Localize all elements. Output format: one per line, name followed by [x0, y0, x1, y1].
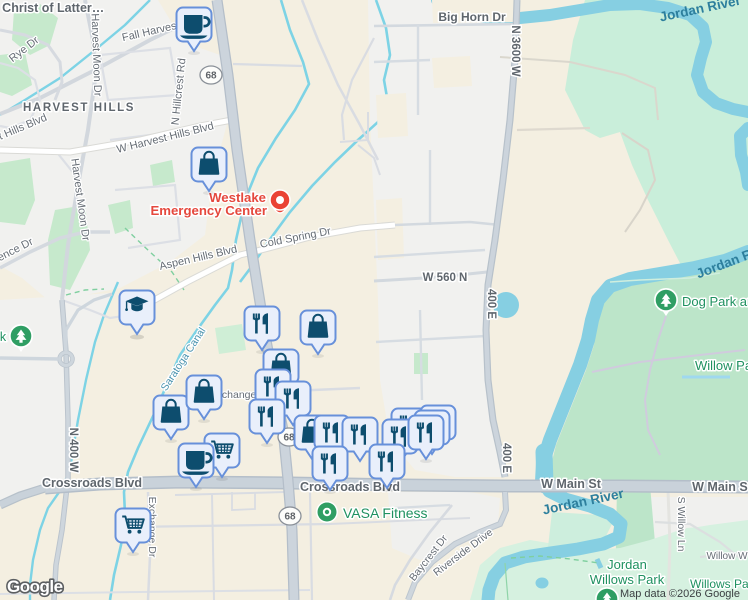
svg-text:Map data ©2026 Google: Map data ©2026 Google	[620, 588, 740, 600]
svg-text:HARVEST HILLS: HARVEST HILLS	[23, 102, 135, 114]
svg-text:Dog Park an: Dog Park an	[682, 294, 748, 309]
svg-text:W Main St: W Main St	[692, 480, 748, 494]
svg-text:W 560 N: W 560 N	[423, 272, 468, 284]
svg-text:Willow Pa: Willow Pa	[695, 358, 748, 373]
svg-text:k: k	[0, 330, 7, 344]
svg-text:400 E: 400 E	[500, 443, 512, 473]
svg-text:Google: Google	[7, 577, 63, 596]
svg-text:Crossroads Blvd: Crossroads Blvd	[42, 476, 142, 490]
svg-text:S Willow Ln: S Willow Ln	[675, 497, 687, 552]
svg-text:W Main St: W Main St	[541, 477, 602, 491]
svg-text:N 3600 W: N 3600 W	[509, 25, 521, 76]
svg-text:N 400 W: N 400 W	[67, 428, 79, 473]
svg-text:400 E: 400 E	[485, 289, 497, 319]
svg-text:Willows Park: Willows Park	[590, 572, 665, 587]
svg-text:Willow W: Willow W	[706, 551, 748, 562]
svg-text:Big Horn Dr: Big Horn Dr	[438, 10, 506, 24]
svg-text:VASA Fitness: VASA Fitness	[343, 505, 428, 521]
svg-text:Jordan: Jordan	[607, 557, 647, 572]
svg-text:Emergency Center: Emergency Center	[150, 203, 267, 218]
